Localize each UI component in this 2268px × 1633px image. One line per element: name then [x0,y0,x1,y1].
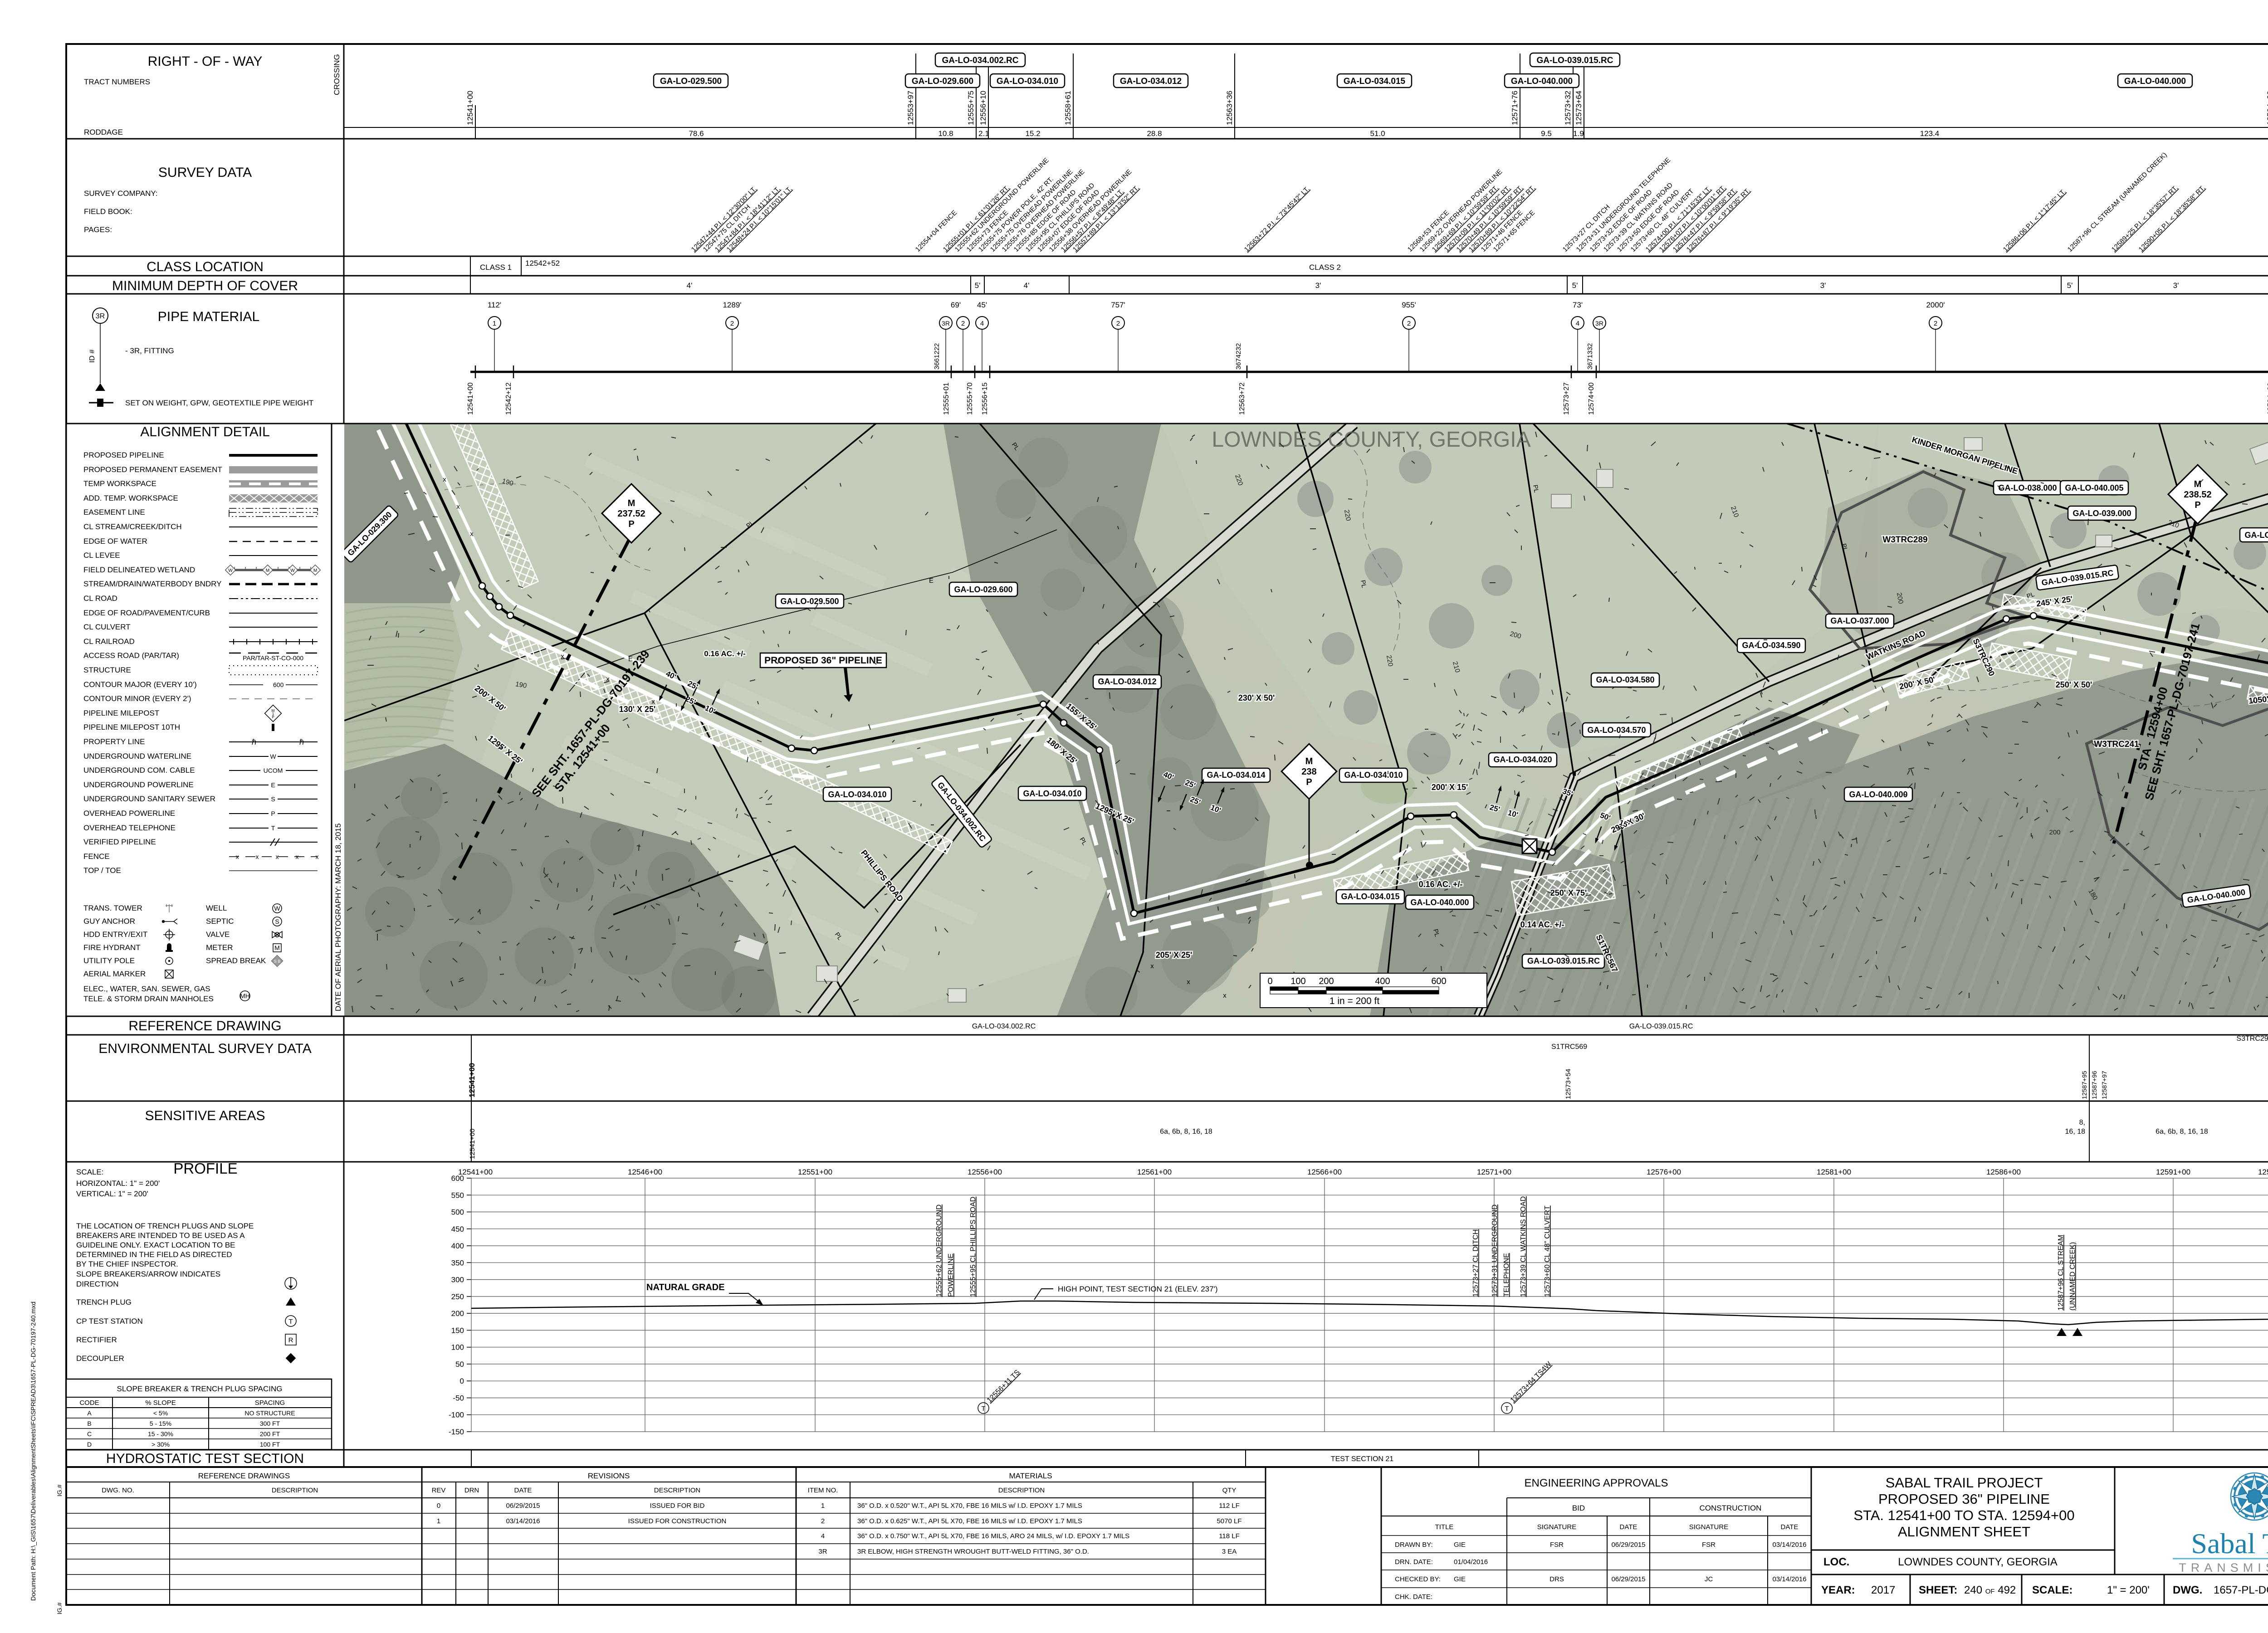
svg-text:HORIZONTAL: 1" = 200': HORIZONTAL: 1" = 200' [76,1179,160,1188]
svg-text:3': 3' [2173,281,2179,290]
svg-text:78.6: 78.6 [689,129,704,138]
svg-text:2.1: 2.1 [978,129,989,138]
svg-text:M: M [266,568,269,573]
svg-text:P: P [1306,777,1312,787]
svg-text:LOWNDES COUNTY, GEORGIA: LOWNDES COUNTY, GEORGIA [1898,1556,2058,1568]
svg-text:SEPTIC: SEPTIC [206,917,234,926]
svg-text:SENSITIVE AREAS: SENSITIVE AREAS [145,1108,265,1123]
svg-text:A: A [87,1409,92,1417]
svg-text:123.4: 123.4 [1920,129,1940,138]
svg-text:W: W [270,753,276,760]
svg-text:UCOM: UCOM [264,767,283,774]
svg-text:NO STRUCTURE: NO STRUCTURE [244,1409,295,1417]
svg-text:PAR/TAR-ST-CO-000: PAR/TAR-ST-CO-000 [243,654,303,662]
svg-text:x: x [256,853,259,860]
svg-text:3R: 3R [1595,320,1603,327]
svg-text:ℏ: ℏ [252,738,257,746]
svg-text:12555+62 UNDERGROUND: 12555+62 UNDERGROUND [935,1204,943,1297]
svg-text:FSR: FSR [1550,1541,1564,1549]
svg-text:0: 0 [437,1502,440,1510]
svg-text:CLASS 1: CLASS 1 [480,263,512,272]
svg-text:5 - 15%: 5 - 15% [150,1420,171,1427]
svg-text:METER: METER [206,943,233,952]
svg-text:12555+70: 12555+70 [966,382,974,415]
svg-text:238.52: 238.52 [2184,490,2211,500]
svg-text:2: 2 [730,320,734,327]
svg-text:1.9: 1.9 [1573,129,1584,138]
svg-text:MH: MH [240,992,250,999]
svg-text:12573+60 CL 48" CULVERT: 12573+60 CL 48" CULVERT [1544,1205,1551,1297]
svg-text:EDGE OF WATER: EDGE OF WATER [83,537,147,546]
svg-text:M: M [2194,479,2202,489]
svg-text:M: M [628,498,635,508]
svg-text:NATURAL GRADE: NATURAL GRADE [646,1282,725,1292]
svg-text:1: 1 [821,1502,825,1510]
svg-text:15.2: 15.2 [1025,129,1040,138]
svg-text:ALIGNMENT DETAIL: ALIGNMENT DETAIL [140,424,270,439]
svg-text:GA-LO-034.570: GA-LO-034.570 [1587,726,1646,735]
svg-text:x: x [276,853,279,860]
svg-text:03/14/2016: 03/14/2016 [1772,1541,1806,1549]
svg-text:PROPOSED PERMANENT EASEMENT: PROPOSED PERMANENT EASEMENT [83,465,222,474]
svg-text:12571+00: 12571+00 [1477,1168,1511,1176]
svg-text:4: 4 [821,1532,825,1540]
svg-text:CONTOUR MAJOR (EVERY 10'): CONTOUR MAJOR (EVERY 10') [83,680,197,689]
svg-text:0: 0 [460,1377,464,1385]
svg-text:S B: S B [274,959,281,964]
svg-text:S3TRC290: S3TRC290 [2236,1035,2268,1043]
svg-text:ALIGNMENT SHEET: ALIGNMENT SHEET [1898,1524,2030,1540]
svg-text:500: 500 [451,1208,464,1217]
svg-text:1" = 200': 1" = 200' [2107,1584,2150,1596]
svg-text:2: 2 [821,1517,825,1525]
svg-text:WELL: WELL [206,904,227,912]
svg-text:3': 3' [1315,281,1321,290]
svg-text:E: E [929,577,934,585]
svg-text:EASEMENT LINE: EASEMENT LINE [83,508,145,517]
svg-text:GA-LO-034.580: GA-LO-034.580 [1596,675,1654,684]
svg-text:PROPOSED 36" PIPELINE: PROPOSED 36" PIPELINE [1878,1491,2050,1507]
svg-text:DATE: DATE [1620,1523,1637,1531]
svg-text:TEMP WORKSPACE: TEMP WORKSPACE [83,479,156,488]
svg-text:CODE: CODE [79,1399,99,1407]
svg-text:CROSSING: CROSSING [332,54,341,95]
svg-text:B: B [87,1420,91,1427]
svg-text:W3TRC241: W3TRC241 [2094,740,2139,749]
svg-text:DRN: DRN [464,1487,479,1494]
svg-text:IG.#: IG.# [56,1602,63,1614]
svg-text:5': 5' [2067,281,2073,290]
svg-text:x: x [561,653,564,660]
svg-text:GA-LO-034.015: GA-LO-034.015 [1341,892,1399,901]
svg-text:RODDAGE: RODDAGE [84,128,123,136]
svg-text:GA-LO-040.000: GA-LO-040.000 [1511,77,1573,86]
svg-text:STREAM/DRAIN/WATERBODY BNDRY: STREAM/DRAIN/WATERBODY BNDRY [83,580,221,588]
svg-text:Sabal Trail: Sabal Trail [2191,1527,2268,1560]
svg-text:12587+95: 12587+95 [2081,1071,2088,1099]
svg-text:12573+31 UNDERGROUND: 12573+31 UNDERGROUND [1491,1204,1499,1297]
svg-text:POWERLINE: POWERLINE [947,1253,955,1297]
svg-text:GA-LO-034.012: GA-LO-034.012 [1120,77,1182,86]
svg-text:TEST SECTION 21: TEST SECTION 21 [1331,1455,1394,1463]
svg-text:12556+00: 12556+00 [968,1168,1002,1176]
svg-text:3R ELBOW, HIGH STRENGTH WROUGH: 3R ELBOW, HIGH STRENGTH WROUGHT BUTT-WEL… [857,1548,1089,1555]
svg-text:600: 600 [1431,976,1446,986]
svg-text:CONSTRUCTION: CONSTRUCTION [1700,1504,1762,1512]
svg-text:AERIAL MARKER: AERIAL MARKER [83,970,146,978]
svg-text:GA-LO-034.590: GA-LO-034.590 [1742,641,1800,650]
svg-text:x: x [316,853,319,860]
svg-text:200: 200 [2049,829,2060,836]
svg-text:03/14/2016: 03/14/2016 [506,1517,540,1525]
svg-text:DRN. DATE:: DRN. DATE: [1395,1558,1433,1566]
svg-text:D: D [87,1441,92,1448]
svg-text:REVISIONS: REVISIONS [588,1472,630,1480]
svg-text:- 3R, FITTING: - 3R, FITTING [125,346,174,355]
svg-text:3': 3' [1820,281,1826,290]
svg-text:GIE: GIE [1454,1541,1466,1549]
svg-text:12573+64: 12573+64 [1574,91,1583,125]
svg-text:350: 350 [451,1258,464,1267]
svg-text:-100: -100 [449,1411,464,1419]
svg-text:12555+95 CL PHILLIPS ROAD: 12555+95 CL PHILLIPS ROAD [969,1197,977,1297]
svg-text:12594+00: 12594+00 [2258,1168,2268,1176]
svg-text:112': 112' [488,301,501,309]
svg-text:VERTICAL: 1" = 200': VERTICAL: 1" = 200' [76,1189,148,1198]
svg-text:GA-LO-040.005: GA-LO-040.005 [2065,483,2123,492]
svg-text:QTY: QTY [1222,1487,1237,1494]
svg-text:DWG. NO.: DWG. NO. [102,1487,134,1494]
svg-text:2: 2 [1407,320,1411,327]
svg-text:150: 150 [451,1326,464,1335]
svg-text:-50: -50 [453,1394,464,1403]
svg-text:CL CULVERT: CL CULVERT [83,623,131,631]
svg-text:50: 50 [455,1360,464,1369]
svg-text:12574+00: 12574+00 [1588,382,1595,415]
svg-text:PAGES:: PAGES: [84,225,112,234]
svg-text:W: W [228,568,233,573]
svg-text:03/14/2016: 03/14/2016 [1772,1575,1806,1583]
svg-text:x: x [443,476,446,483]
svg-text:TRENCH PLUG: TRENCH PLUG [76,1298,132,1306]
svg-text:757': 757' [1111,301,1125,309]
svg-text:237.52: 237.52 [617,509,645,519]
svg-text:T: T [271,824,275,832]
svg-text:3R: 3R [942,320,950,327]
svg-text:x: x [1223,992,1227,999]
svg-text:250: 250 [451,1292,464,1301]
svg-text:ISSUED FOR CONSTRUCTION: ISSUED FOR CONSTRUCTION [628,1517,727,1525]
svg-text:GA-LO-034.012: GA-LO-034.012 [1098,677,1156,686]
svg-text:0.16 AC. +/-: 0.16 AC. +/- [1419,880,1463,889]
svg-text:12587+96: 12587+96 [2091,1071,2098,1099]
svg-text:S1TRC569: S1TRC569 [1551,1043,1587,1051]
svg-text:9.5: 9.5 [1541,129,1552,138]
svg-text:200: 200 [451,1309,464,1318]
svg-text:3661222: 3661222 [933,343,941,370]
svg-text:12566+00: 12566+00 [1307,1168,1342,1176]
svg-text:TOP / TOE: TOP / TOE [83,866,121,875]
svg-text:16, 18: 16, 18 [2065,1128,2086,1136]
svg-text:GA-LO-034.010: GA-LO-034.010 [1023,789,1081,798]
svg-text:UNDERGROUND POWERLINE: UNDERGROUND POWERLINE [83,780,194,789]
svg-text:TITLE: TITLE [1435,1523,1454,1531]
svg-text:205' X 25': 205' X 25' [1156,951,1193,960]
svg-text:TRANS. TOWER: TRANS. TOWER [83,904,142,912]
svg-text:10.8: 10.8 [938,129,953,138]
svg-text:SET ON WEIGHT, GPW, GEOTEXTILE: SET ON WEIGHT, GPW, GEOTEXTILE PIPE WEIG… [125,399,313,407]
svg-text:3R: 3R [96,312,105,320]
svg-text:400: 400 [451,1242,464,1250]
svg-text:GA-LO-039.015.RC: GA-LO-039.015.RC [1537,56,1613,65]
svg-text:x: x [296,853,299,860]
svg-text:HDD ENTRY/EXIT: HDD ENTRY/EXIT [83,930,147,939]
svg-text:C: C [87,1430,92,1438]
svg-text:STRUCTURE: STRUCTURE [83,666,131,674]
svg-text:2017: 2017 [1871,1584,1895,1596]
svg-text:12555+75: 12555+75 [967,91,975,125]
svg-text:UNDERGROUND WATERLINE: UNDERGROUND WATERLINE [83,752,191,760]
svg-text:x: x [456,503,460,511]
svg-text:E: E [271,781,275,789]
svg-text:12561+00: 12561+00 [1137,1168,1172,1176]
svg-text:HYDROSTATIC TEST SECTION: HYDROSTATIC TEST SECTION [106,1451,304,1466]
svg-text:238: 238 [1301,767,1316,777]
svg-text:SLOPE BREAKERS/ARROW INDICATES: SLOPE BREAKERS/ARROW INDICATES [76,1270,220,1278]
svg-text:P: P [2195,500,2200,510]
svg-text:12542+12: 12542+12 [505,382,513,415]
svg-text:4: 4 [980,320,984,327]
svg-text:200: 200 [1319,976,1334,986]
svg-text:3674232: 3674232 [1235,343,1242,370]
svg-text:GA-LO-034.010: GA-LO-034.010 [1344,770,1403,780]
svg-text:ENGINEERING APPROVALS: ENGINEERING APPROVALS [1525,1477,1668,1489]
svg-text:T: T [1505,1405,1509,1413]
svg-text:CHK. DATE:: CHK. DATE: [1395,1593,1432,1601]
svg-text:LOC.: LOC. [1823,1556,1849,1568]
svg-text:12563+36: 12563+36 [1225,91,1234,125]
svg-text:12587+96 CL STREAM: 12587+96 CL STREAM [2057,1235,2065,1311]
svg-text:GA-LO-038.000: GA-LO-038.000 [1998,483,2057,492]
svg-text:GA-LO-029.500: GA-LO-029.500 [660,77,722,86]
svg-text:GUY ANCHOR: GUY ANCHOR [83,917,135,926]
svg-text:12594+00: 12594+00 [2266,91,2268,125]
svg-text:200 FT: 200 FT [260,1430,280,1438]
svg-text:x: x [1187,978,1190,986]
svg-text:300: 300 [451,1276,464,1284]
svg-text:GA-LO-039.000: GA-LO-039.000 [2072,509,2131,518]
svg-text:FIRE HYDRANT: FIRE HYDRANT [83,943,141,952]
svg-text:ELEC., WATER, SAN. SEWER, GAS: ELEC., WATER, SAN. SEWER, GAS [83,985,210,993]
svg-text:LOWNDES COUNTY, GEORGIA: LOWNDES COUNTY, GEORGIA [1212,428,1530,452]
svg-text:200' X 15': 200' X 15' [1432,783,1468,792]
svg-text:CONTOUR MINOR (EVERY 2'): CONTOUR MINOR (EVERY 2') [83,694,191,703]
svg-text:5070 LF: 5070 LF [1217,1517,1242,1525]
svg-text:-150: -150 [449,1428,464,1436]
svg-text:> 30%: > 30% [152,1441,170,1448]
svg-text:12541+00: 12541+00 [468,1063,476,1097]
svg-text:12576+00: 12576+00 [1647,1168,1681,1176]
svg-text:12551+00: 12551+00 [798,1168,832,1176]
svg-text:73': 73' [1573,301,1583,309]
svg-text:PIPELINE MILEPOST 10TH: PIPELINE MILEPOST 10TH [83,723,180,731]
svg-text:12573+27 CL DITCH: 12573+27 CL DITCH [1472,1229,1480,1297]
svg-text:P: P [272,715,274,719]
svg-text:W: W [290,568,295,573]
svg-text:12587+97: 12587+97 [2101,1071,2108,1099]
svg-text:DRS: DRS [1549,1575,1564,1583]
svg-text:12591+00: 12591+00 [2156,1168,2190,1176]
svg-text:x: x [470,530,474,538]
svg-text:EDGE OF ROAD/PAVEMENT/CURB: EDGE OF ROAD/PAVEMENT/CURB [83,609,210,617]
svg-text:P: P [628,519,634,529]
svg-text:RIGHT - OF - WAY: RIGHT - OF - WAY [148,54,263,69]
svg-text:VERIFIED PIPELINE: VERIFIED PIPELINE [83,838,156,846]
svg-text:ℏ: ℏ [299,738,304,746]
svg-text:GA-LO-029.600: GA-LO-029.600 [912,77,973,86]
svg-text:PROPERTY LINE: PROPERTY LINE [83,737,145,746]
svg-text:4': 4' [687,281,693,290]
svg-text:VALVE: VALVE [206,930,230,939]
svg-text:M: M [313,568,317,573]
svg-text:06/29/2015: 06/29/2015 [506,1502,540,1510]
svg-text:SPREAD BREAK: SPREAD BREAK [206,956,266,965]
svg-text:SCALE:: SCALE: [2032,1584,2072,1596]
svg-text:GA-LO-034.002.RC: GA-LO-034.002.RC [942,56,1019,65]
svg-text:GIE: GIE [1454,1575,1466,1583]
svg-text:x: x [651,698,655,706]
svg-text:300 FT: 300 FT [260,1420,280,1427]
svg-text:ACCESS ROAD (PAR/TAR): ACCESS ROAD (PAR/TAR) [83,651,179,660]
svg-text:2: 2 [1934,320,1937,327]
svg-text:SPACING: SPACING [255,1399,285,1407]
svg-text:S: S [271,795,275,803]
svg-text:06/29/2015: 06/29/2015 [1611,1541,1645,1549]
svg-text:BREAKERS ARE INTENDED TO BE US: BREAKERS ARE INTENDED TO BE USED AS A [76,1231,245,1240]
svg-text:DESCRIPTION: DESCRIPTION [998,1487,1045,1494]
svg-text:230' X 50': 230' X 50' [1238,693,1275,702]
svg-text:M: M [274,944,280,951]
svg-text:CP TEST STATION: CP TEST STATION [76,1317,143,1326]
svg-text:HIGH POINT, TEST SECTION 21 (E: HIGH POINT, TEST SECTION 21 (ELEV. 237') [1058,1285,1218,1293]
svg-text:GA-LO-037.000: GA-LO-037.000 [1830,616,1889,625]
svg-text:ENVIRONMENTAL SURVEY DATA: ENVIRONMENTAL SURVEY DATA [98,1041,312,1056]
svg-text:ISSUED FOR BID: ISSUED FOR BID [650,1502,705,1510]
svg-text:DRAWN BY:: DRAWN BY: [1395,1541,1433,1549]
svg-text:Document Path: H:\_GIS\1657\De: Document Path: H:\_GIS\1657\Deliverables… [29,1302,37,1601]
svg-text:12573+27: 12573+27 [1563,382,1570,415]
svg-text:118 LF: 118 LF [1219,1532,1240,1540]
svg-text:PROFILE: PROFILE [173,1160,237,1177]
svg-text:(UNNAMED CREEK): (UNNAMED CREEK) [2069,1242,2077,1311]
svg-text:28.8: 28.8 [1147,129,1162,138]
svg-text:RECTIFIER: RECTIFIER [76,1336,117,1344]
svg-text:DATE: DATE [1781,1523,1799,1531]
svg-text:PROPOSED PIPELINE: PROPOSED PIPELINE [83,451,164,459]
svg-text:W3TRC289: W3TRC289 [1882,535,1927,545]
svg-text:GA-LO-039.015.RC: GA-LO-039.015.RC [1629,1023,1693,1030]
svg-text:12586+00: 12586+00 [1986,1168,2021,1176]
svg-text:GA-LO-040.000: GA-LO-040.000 [1410,898,1469,907]
svg-text:FENCE: FENCE [83,852,110,861]
svg-text:450: 450 [451,1225,464,1233]
svg-text:FSR: FSR [1702,1541,1716,1549]
svg-text:CLASS 2: CLASS 2 [1309,263,1341,272]
svg-text:W: W [274,905,280,912]
svg-text:0.16 AC. +/-: 0.16 AC. +/- [704,649,746,658]
svg-text:SIGNATURE: SIGNATURE [1537,1523,1576,1531]
svg-text:E: E [628,655,633,663]
svg-text:12573+54: 12573+54 [1564,1069,1572,1099]
svg-text:36" O.D. x 0.520" W.T., API 5L: 36" O.D. x 0.520" W.T., API 5L X70, FBE … [857,1502,1082,1510]
svg-text:12556+15: 12556+15 [981,382,989,415]
svg-text:FIELD DELINEATED WETLAND: FIELD DELINEATED WETLAND [83,565,195,574]
svg-text:DATE OF AERIAL PHOTOGRAPHY: MA: DATE OF AERIAL PHOTOGRAPHY: MARCH 18, 20… [334,824,342,1011]
svg-text:0: 0 [1267,976,1272,986]
svg-text:S: S [275,918,279,925]
svg-text:5': 5' [1572,281,1578,290]
svg-text:DWG.: DWG. [2173,1584,2202,1596]
svg-text:STA. 12541+00 TO STA. 12594+00: STA. 12541+00 TO STA. 12594+00 [1853,1507,2074,1523]
svg-text:36" O.D. x 0.750" W.T., API 5L: 36" O.D. x 0.750" W.T., API 5L X70, FBE … [857,1532,1129,1540]
svg-text:DETERMINED IN THE FIELD AS DIR: DETERMINED IN THE FIELD AS DIRECTED [76,1250,232,1259]
svg-text:GA-LO-039.015.RC: GA-LO-039.015.RC [1527,956,1600,965]
svg-text:SCALE:: SCALE: [76,1168,103,1176]
svg-text:250' X 75': 250' X 75' [1550,888,1587,897]
svg-text:45': 45' [977,301,987,309]
svg-text:12541+00: 12541+00 [467,382,474,415]
svg-text:12573+39 CL WATKINS ROAD: 12573+39 CL WATKINS ROAD [1520,1196,1527,1297]
svg-text:2: 2 [961,320,965,327]
svg-text:R: R [288,1336,293,1344]
svg-text:PIPELINE MILEPOST: PIPELINE MILEPOST [83,709,159,717]
svg-text:P: P [271,810,275,817]
svg-text:GA-LO-034.010: GA-LO-034.010 [828,790,886,799]
svg-text:REV: REV [432,1487,446,1494]
svg-text:955': 955' [1402,301,1416,309]
svg-text:DIRECTION: DIRECTION [76,1280,119,1288]
svg-text:% SLOPE: % SLOPE [145,1399,176,1407]
svg-text:JC: JC [1705,1575,1713,1583]
svg-text:TRANSMISSION: TRANSMISSION [2179,1561,2268,1575]
svg-text:12553+97: 12553+97 [906,91,915,125]
svg-text:GA-LO-029.500: GA-LO-029.500 [780,597,839,606]
svg-text:400: 400 [1375,976,1390,986]
svg-text:T: T [288,1318,293,1326]
svg-text:M: M [1305,756,1313,766]
svg-text:UTILITY POLE: UTILITY POLE [83,956,135,965]
svg-text:TRACT NUMBERS: TRACT NUMBERS [84,78,150,86]
svg-text:SHEET:: SHEET: [1919,1584,1957,1596]
svg-text:12573+32: 12573+32 [1564,91,1572,125]
svg-text:100 FT: 100 FT [260,1441,280,1448]
svg-text:130' X 25': 130' X 25' [619,705,656,714]
svg-text:250' X 50': 250' X 50' [2056,680,2092,689]
svg-text:CL ROAD: CL ROAD [83,594,117,603]
svg-text:4: 4 [1576,320,1579,327]
svg-text:SURVEY DATA: SURVEY DATA [158,165,252,180]
svg-text:CHECKED BY:: CHECKED BY: [1395,1575,1441,1583]
svg-text:x: x [1150,962,1154,970]
svg-text:PROPOSED 36" PIPELINE: PROPOSED 36" PIPELINE [764,655,882,666]
svg-text:4': 4' [1024,281,1030,290]
svg-text:DESCRIPTION: DESCRIPTION [654,1487,701,1494]
svg-text:12542+52: 12542+52 [525,259,560,268]
svg-text:MATERIALS: MATERIALS [1009,1472,1052,1480]
svg-text:01/04/2016: 01/04/2016 [1454,1558,1488,1566]
svg-text:x: x [236,853,239,860]
svg-text:112 LF: 112 LF [1219,1502,1240,1510]
